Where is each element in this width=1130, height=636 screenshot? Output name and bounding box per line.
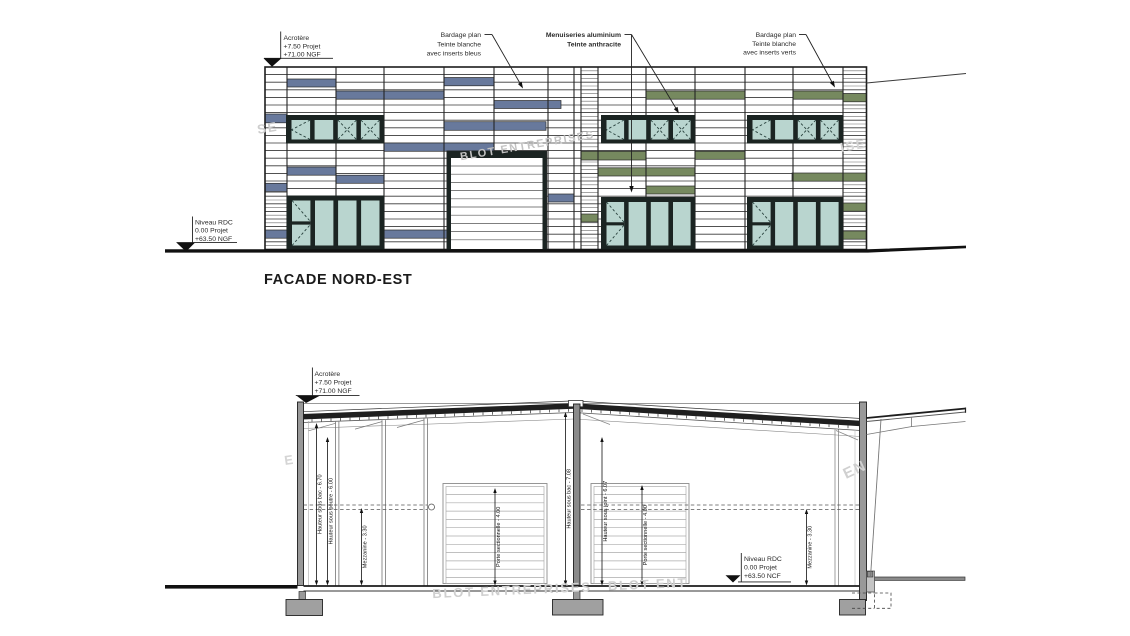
svg-text:FACADE NORD-EST: FACADE NORD-EST	[264, 272, 412, 288]
svg-text:Teinte blanche: Teinte blanche	[437, 41, 481, 48]
svg-text:Hauteur sous poutre - 6.00: Hauteur sous poutre - 6.00	[329, 478, 335, 545]
svg-text:E: E	[283, 452, 294, 468]
svg-text:Porte sectionnelle - 4.00: Porte sectionnelle - 4.00	[643, 505, 649, 565]
svg-text:+71.00 NGF: +71.00 NGF	[315, 388, 352, 395]
svg-text:Porte sectionnelle - 4.00: Porte sectionnelle - 4.00	[496, 507, 502, 567]
svg-text:+7.50 Projet: +7.50 Projet	[284, 43, 321, 50]
svg-text:Menuiseries aluminium: Menuiseries aluminium	[546, 32, 621, 39]
svg-text:Niveau RDC: Niveau RDC	[744, 556, 782, 563]
svg-text:avec inserts bleus: avec inserts bleus	[427, 51, 482, 58]
svg-text:Hauteur sous bac - 7.08: Hauteur sous bac - 7.08	[567, 469, 573, 529]
svg-text:Mezzanine - 3.30: Mezzanine - 3.30	[808, 526, 814, 569]
svg-text:Niveau RDC: Niveau RDC	[195, 220, 233, 227]
svg-text:avec inserts verts: avec inserts verts	[743, 50, 796, 57]
svg-text:SE: SE	[256, 119, 279, 137]
svg-text:Hauteur sous joint - 6.07: Hauteur sous joint - 6.07	[603, 481, 609, 542]
svg-text:Bardage plan: Bardage plan	[756, 32, 797, 39]
svg-text:Teinte blanche: Teinte blanche	[752, 41, 796, 48]
svg-text:Acrotère: Acrotère	[315, 371, 341, 378]
svg-text:Mezzanine - 3.30: Mezzanine - 3.30	[363, 525, 369, 568]
svg-text:Acrotère: Acrotère	[284, 35, 310, 42]
svg-text:+63.50 NGF: +63.50 NGF	[195, 236, 232, 243]
svg-text:ISE: ISE	[839, 136, 867, 155]
svg-text:Teinte anthracite: Teinte anthracite	[567, 41, 621, 48]
svg-text:0.00 Projet: 0.00 Projet	[744, 565, 777, 572]
svg-text:+7.50 Projet: +7.50 Projet	[315, 380, 352, 387]
svg-text:Hauteur sous bac - 6.70: Hauteur sous bac - 6.70	[318, 474, 324, 534]
svg-text:0.00 Projet: 0.00 Projet	[195, 228, 228, 235]
svg-text:+63.50 NCF: +63.50 NCF	[744, 573, 781, 580]
svg-text:Bardage plan: Bardage plan	[441, 32, 482, 39]
svg-text:+71.00 NGF: +71.00 NGF	[284, 52, 321, 59]
